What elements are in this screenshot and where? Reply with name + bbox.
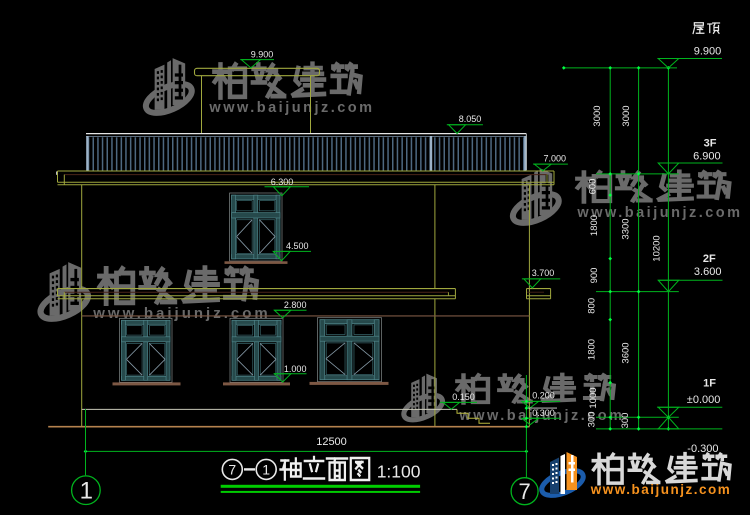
svg-text:1F: 1F bbox=[703, 377, 716, 389]
svg-text:www.baijunjz.com: www.baijunjz.com bbox=[590, 482, 732, 497]
svg-text:1800: 1800 bbox=[587, 339, 598, 360]
svg-text:300: 300 bbox=[620, 413, 631, 429]
svg-text:1800: 1800 bbox=[589, 215, 600, 236]
svg-text:3F: 3F bbox=[704, 138, 717, 150]
svg-text:0.300: 0.300 bbox=[532, 408, 555, 418]
svg-text:300: 300 bbox=[587, 411, 598, 427]
svg-text:9.900: 9.900 bbox=[694, 46, 722, 58]
svg-text:10200: 10200 bbox=[652, 235, 663, 261]
svg-text:7.000: 7.000 bbox=[544, 153, 567, 163]
svg-text:7: 7 bbox=[518, 479, 530, 504]
svg-text:3300: 3300 bbox=[621, 218, 632, 239]
svg-text:0.200: 0.200 bbox=[532, 391, 555, 401]
svg-text:1000: 1000 bbox=[588, 387, 599, 408]
svg-text:3600: 3600 bbox=[621, 342, 632, 363]
svg-text:3000: 3000 bbox=[592, 105, 603, 126]
svg-text:2.800: 2.800 bbox=[284, 300, 307, 310]
svg-text:3.600: 3.600 bbox=[694, 266, 722, 278]
svg-text:6.900: 6.900 bbox=[693, 151, 721, 163]
svg-text:www.baijunjz.com: www.baijunjz.com bbox=[92, 305, 270, 322]
svg-text:12500: 12500 bbox=[316, 436, 347, 448]
svg-text:2F: 2F bbox=[703, 253, 716, 265]
svg-text:1: 1 bbox=[80, 477, 93, 504]
svg-text:3.700: 3.700 bbox=[532, 268, 555, 278]
svg-text:9.900: 9.900 bbox=[251, 49, 274, 59]
svg-text:1: 1 bbox=[262, 461, 270, 477]
svg-text:600: 600 bbox=[588, 179, 599, 195]
svg-text:www.baijunjz.com: www.baijunjz.com bbox=[576, 205, 742, 221]
svg-text:1.000: 1.000 bbox=[284, 364, 307, 374]
svg-text:±0.000: ±0.000 bbox=[687, 394, 721, 406]
svg-text:6.300: 6.300 bbox=[271, 177, 294, 187]
svg-text:4.500: 4.500 bbox=[286, 241, 309, 251]
svg-text:8.050: 8.050 bbox=[459, 114, 482, 124]
svg-text:7: 7 bbox=[228, 461, 236, 477]
svg-text:800: 800 bbox=[587, 298, 598, 314]
svg-text:0.150: 0.150 bbox=[452, 392, 475, 402]
svg-text:900: 900 bbox=[589, 268, 600, 284]
svg-text:www.baijunjz.com: www.baijunjz.com bbox=[208, 100, 374, 116]
svg-text:-0.300: -0.300 bbox=[687, 443, 718, 455]
svg-text:3000: 3000 bbox=[621, 105, 632, 126]
svg-text:1:100: 1:100 bbox=[377, 462, 421, 482]
